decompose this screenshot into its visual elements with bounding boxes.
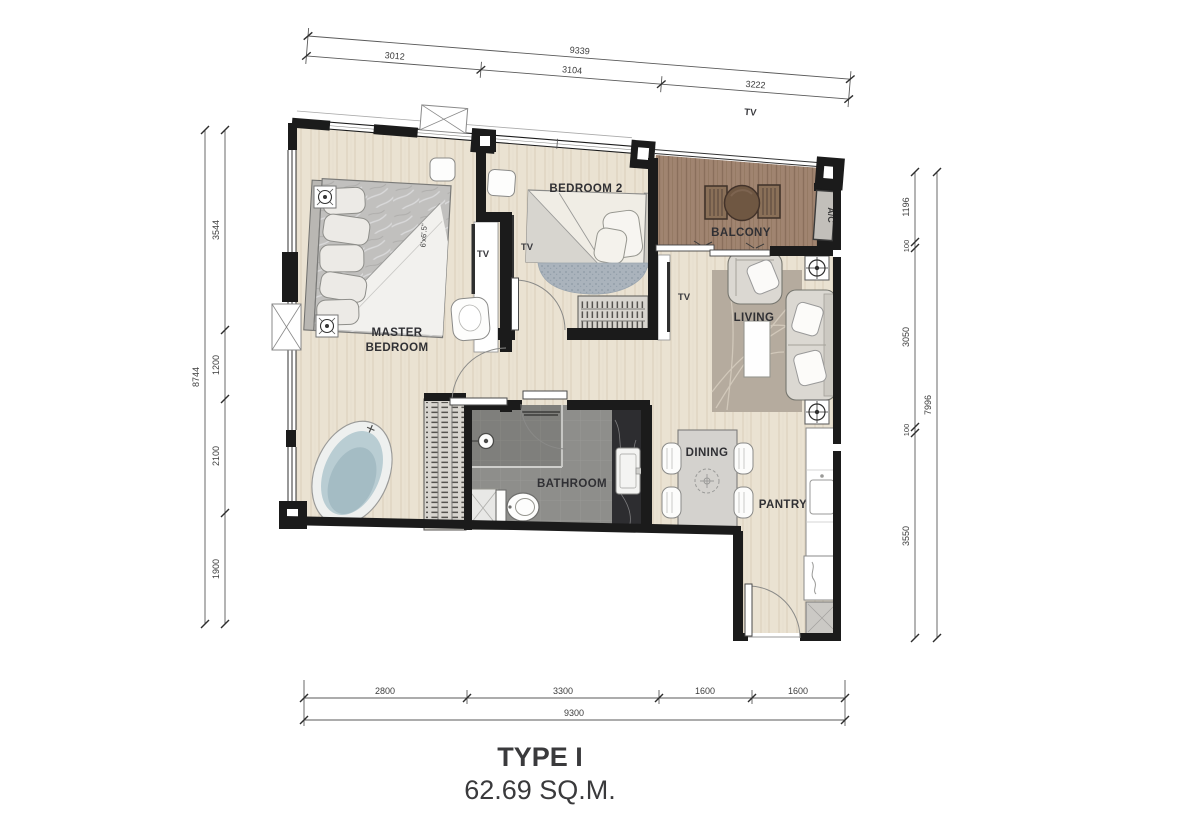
- living-tv-label: TV: [678, 292, 691, 303]
- dim-bottom-seg2: 3300: [553, 686, 573, 696]
- ceiling-symbol-icon: [314, 186, 336, 208]
- pantry-label: PANTRY: [759, 499, 807, 511]
- dim-top-seg3: 3222: [745, 79, 766, 91]
- master-bed-size-label: 6'x6'.5": [419, 223, 429, 248]
- dim-right-seg5: 3550: [901, 526, 911, 546]
- dim-bottom: 2800 3300 1600 1600 9300: [300, 680, 849, 726]
- ac-ledge-icon: [420, 105, 468, 134]
- floorplan-drawing: 6'x6'.5": [0, 0, 1200, 840]
- ceiling-symbol-icon: [316, 315, 338, 337]
- top-tv-label: TV: [744, 107, 758, 119]
- dim-left-seg3: 2100: [211, 446, 221, 466]
- balcony-chair-right: [758, 185, 780, 218]
- dim-top-seg1: 3012: [384, 50, 405, 62]
- bedroom2-wardrobe: [578, 296, 648, 330]
- dim-left-seg2: 1200: [211, 355, 221, 375]
- plan-area-title: 62.69 SQ.M.: [464, 775, 616, 805]
- living-armchair: [728, 252, 782, 304]
- bedroom2-label: BEDROOM 2: [549, 183, 622, 195]
- bedroom2-tv-label: TV: [521, 242, 534, 253]
- dim-left-overall: 8744: [191, 367, 201, 387]
- ledge-icon: [272, 304, 301, 350]
- living-label: LIVING: [734, 312, 775, 324]
- master-bedside-table: [430, 158, 455, 181]
- living-tv-panel: [667, 262, 670, 332]
- dim-left-seg1: 3544: [211, 220, 221, 240]
- dim-bottom-seg1: 2800: [375, 686, 395, 696]
- balcony: BALCONY A/C: [694, 183, 840, 248]
- ceiling-fixture-icon: [805, 256, 829, 280]
- master-tv-panel: [472, 224, 476, 294]
- master-bedroom-label-line1: MASTER: [372, 327, 423, 339]
- dim-left: 8744 3544 1200 2100 1900: [191, 126, 229, 628]
- dim-top: 9339 3012 3104 3222 TV: [300, 24, 855, 127]
- living-sofa: [786, 290, 836, 400]
- plan-type-title: TYPE I: [497, 742, 583, 772]
- dim-bottom-seg3: 1600: [695, 686, 715, 696]
- dim-bottom-overall: 9300: [564, 708, 584, 718]
- bedroom2-bed: [526, 189, 653, 267]
- dim-right-seg2: 100: [902, 240, 911, 253]
- dim-right-overall: 7996: [923, 395, 933, 415]
- master-bedroom-label-line2: BEDROOM: [366, 342, 429, 354]
- dim-right-seg4: 100: [902, 424, 911, 437]
- bedroom2-cabinet: [487, 169, 516, 197]
- title-block: TYPE I 62.69 SQ.M.: [464, 742, 616, 805]
- dim-top-seg2: 3104: [562, 64, 583, 76]
- dim-left-seg4: 1900: [211, 559, 221, 579]
- coffee-table: [744, 321, 770, 377]
- pantry-appliance: [804, 556, 838, 600]
- bathroom-label: BATHROOM: [537, 478, 607, 490]
- master-tv-label: TV: [477, 249, 490, 260]
- toilet: [496, 490, 539, 524]
- dining-label: DINING: [686, 447, 729, 459]
- dim-right: 1196 100 3050 100 3550 7996: [901, 168, 941, 642]
- ceiling-fixture-icon: [805, 400, 829, 424]
- dim-right-seg3: 3050: [901, 327, 911, 347]
- balcony-chair-left: [705, 186, 727, 219]
- balcony-label: BALCONY: [711, 227, 771, 239]
- dim-bottom-seg4: 1600: [788, 686, 808, 696]
- floorplan-page: 6'x6'.5": [0, 0, 1200, 840]
- master-wardrobe: [424, 399, 466, 530]
- dining-table: [678, 430, 737, 528]
- vanity: [612, 405, 643, 530]
- dim-right-seg1: 1196: [901, 197, 911, 216]
- dim-top-overall: 9339: [569, 45, 590, 57]
